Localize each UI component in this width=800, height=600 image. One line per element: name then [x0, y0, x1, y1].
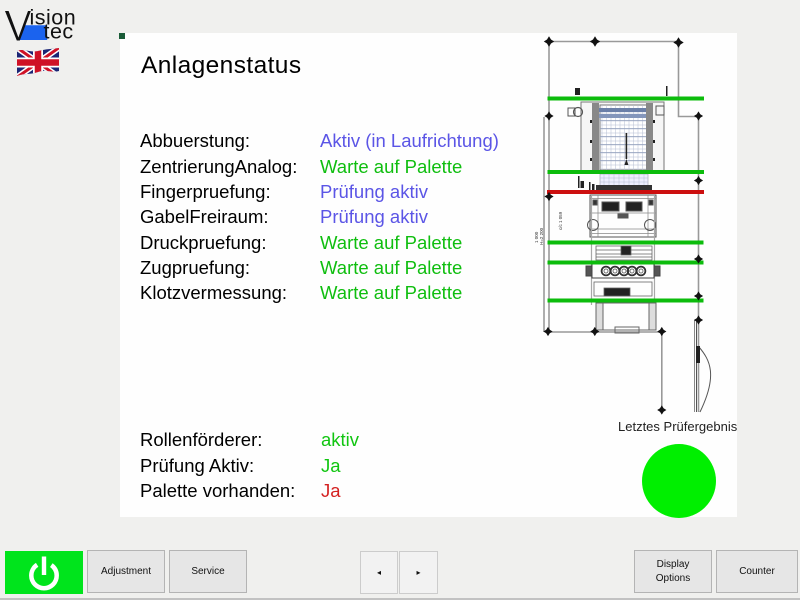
svg-text:H=2 200: H=2 200	[539, 227, 544, 245]
svg-text:tec: tec	[44, 20, 74, 44]
svg-text:c/c 1 059: c/c 1 059	[558, 211, 563, 230]
